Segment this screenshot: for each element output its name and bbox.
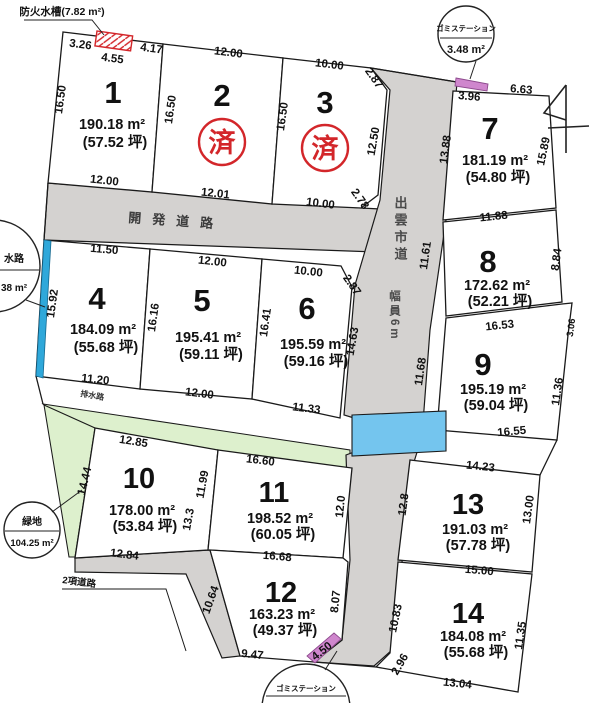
lot-12-number: 12 — [265, 577, 297, 609]
lot-1-number: 1 — [104, 75, 121, 110]
lot-3-number: 3 — [316, 85, 333, 120]
lot-4-tsubo: (55.68 坪) — [74, 339, 139, 356]
lot-1-area: 190.18 m² — [79, 117, 145, 133]
green-circle — [4, 502, 60, 558]
green-name: 緑地 — [22, 515, 42, 528]
lot-4-number: 4 — [88, 281, 106, 316]
lot-9-tsubo: (59.04 坪) — [464, 397, 529, 414]
lot-6-area: 195.59 m² — [280, 337, 346, 353]
lot-14-tsubo: (55.68 坪) — [444, 644, 509, 661]
lot-11-number: 11 — [259, 477, 290, 509]
city-road-label: 出雲市道 — [393, 195, 408, 264]
lot-7-tsubo: (54.80 坪) — [466, 169, 531, 186]
lot-9-area: 195.19 m² — [460, 382, 526, 398]
fire-tank-label: 防火水槽(7.82 m²) — [19, 5, 104, 18]
garbage-top-name: ゴミステーション — [436, 23, 496, 33]
culvert-rect — [352, 411, 446, 456]
lot-12-tsubo: (49.37 坪) — [253, 622, 318, 639]
lot-14-area: 184.08 m² — [440, 629, 506, 645]
lot-7-area: 181.19 m² — [462, 153, 528, 169]
lot-4-area: 184.09 m² — [70, 322, 136, 338]
lot-13-area: 191.03 m² — [442, 522, 508, 538]
dim-lot11-bottom: 16.68 — [262, 550, 292, 565]
lot-10-number: 10 — [123, 463, 155, 495]
waterway-area: 38 m² — [1, 283, 28, 294]
waterway-name: 水路 — [3, 252, 25, 265]
dim-lot7-top-b: 6.63 — [510, 83, 533, 97]
dim-lot12-bottom: 9.47 — [241, 648, 265, 662]
dim-lot4-top: 11.50 — [90, 243, 119, 257]
dim-lot13-bottom: 15.00 — [464, 564, 494, 578]
lot-6-number: 6 — [298, 291, 315, 326]
lot-8-area: 172.62 m² — [464, 278, 530, 294]
lot-10-tsubo: (53.84 坪) — [113, 518, 178, 535]
dim-lot12-right: 8.07 — [329, 590, 343, 614]
lot-14-number: 14 — [452, 598, 484, 630]
plot-map: 防火水槽(7.82 m²) 1 2 3 4 5 6 7 8 9 10 11 12… — [0, 0, 600, 703]
lot-1-tsubo: (57.52 坪) — [83, 134, 148, 151]
lot-3-sold-mark: 済 — [312, 133, 340, 164]
city-road-width-label: 幅員6m — [388, 289, 402, 342]
lot-7-number: 7 — [481, 111, 498, 146]
dim-lot7-top-a: 3.96 — [458, 90, 481, 104]
lot-5-area: 195.41 m² — [175, 330, 241, 346]
lot-5-tsubo: (59.11 坪) — [179, 346, 243, 363]
lot-2-number: 2 — [213, 78, 230, 113]
lot-11-area: 198.52 m² — [247, 511, 313, 527]
garbage-top-area: 3.48 m² — [447, 44, 485, 56]
lot-8-number: 8 — [479, 244, 496, 279]
green-area: 104.25 m² — [10, 538, 53, 549]
lot-13-tsubo: (57.78 坪) — [446, 537, 511, 554]
dim-lot9-bottom: 16.55 — [497, 425, 527, 440]
lot-9-number: 9 — [474, 347, 491, 382]
lot-6-tsubo: (59.16 坪) — [284, 353, 349, 370]
lot-2-sold-mark: 済 — [209, 127, 237, 158]
lot-13-number: 13 — [452, 489, 484, 521]
lot-10-area: 178.00 m² — [109, 503, 175, 519]
lot-8-tsubo: (52.21 坪) — [468, 293, 533, 310]
dim-lot11-right: 12.0 — [334, 495, 348, 519]
lot-5-number: 5 — [193, 283, 210, 318]
lot-11-tsubo: (60.05 坪) — [251, 526, 316, 543]
garbage-bottom-name: ゴミステーション — [276, 683, 336, 693]
lot-12-area: 163.23 m² — [249, 607, 315, 623]
